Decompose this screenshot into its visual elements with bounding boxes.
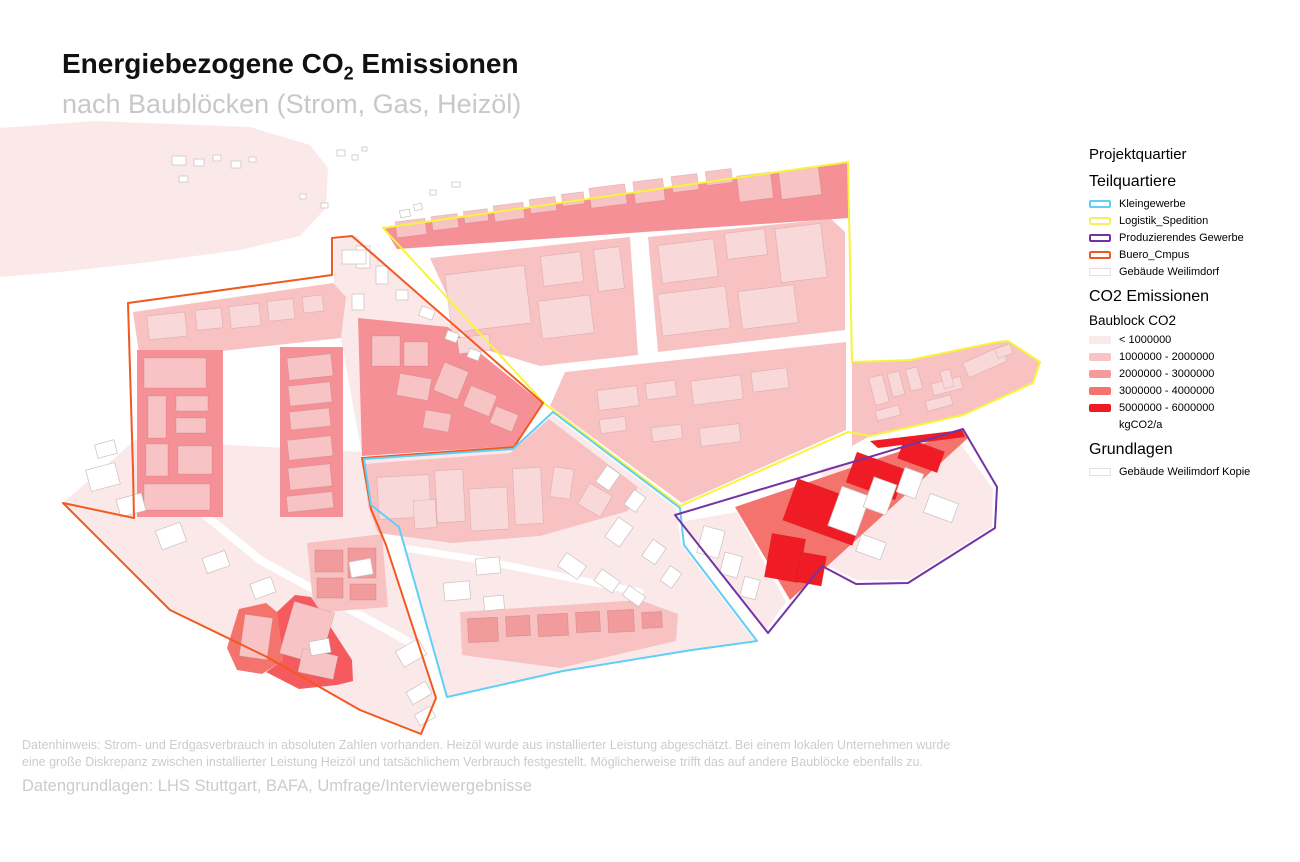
building-footprint (352, 294, 364, 310)
building-footprint (231, 161, 241, 168)
grundlage-swatch (1089, 468, 1111, 476)
teilquartier-item: Kleingewerbe (1089, 198, 1299, 210)
building-footprint (309, 638, 331, 655)
building-footprint (430, 190, 436, 195)
building-footprint (288, 464, 332, 490)
building-footprint (337, 150, 345, 156)
building-footprint (642, 611, 663, 628)
grundlage-label: Gebäude Weilimdorf Kopie (1119, 466, 1250, 478)
building-footprint (467, 617, 498, 643)
footer-note-line1: Datenhinweis: Strom- und Erdgasverbrauch… (22, 737, 950, 754)
teilquartier-swatch (1089, 234, 1111, 242)
co2-class-swatch (1089, 353, 1111, 361)
building-footprint (751, 368, 789, 392)
building-footprint (321, 203, 328, 208)
building-footprint (607, 609, 634, 632)
building-footprint (404, 342, 428, 366)
co2-class-item: 5000000 - 6000000 (1089, 402, 1299, 414)
building-footprint (213, 155, 221, 161)
co2-class-label: 2000000 - 3000000 (1119, 368, 1214, 380)
building-footprint (178, 446, 212, 474)
teilquartier-label: Kleingewerbe (1119, 198, 1186, 210)
teilquartier-label: Buero_Cmpus (1119, 249, 1189, 261)
building-footprint (287, 354, 333, 380)
building-footprint (431, 213, 459, 230)
legend-co2-list: < 10000001000000 - 20000002000000 - 3000… (1089, 334, 1299, 414)
page-subtitle: nach Baublöcken (Strom, Gas, Heizöl) (62, 89, 521, 120)
building-footprint (289, 408, 331, 430)
building-footprint (738, 285, 798, 330)
teilquartier-label: Produzierendes Gewerbe (1119, 232, 1244, 244)
teilquartier-item: Gebäude Weilimdorf (1089, 266, 1299, 278)
co2-class-item: < 1000000 (1089, 334, 1299, 346)
building-footprint (317, 578, 343, 598)
building-footprint (287, 436, 333, 460)
building-footprint (146, 444, 168, 476)
building-footprint (443, 581, 470, 601)
building-footprint (725, 229, 768, 260)
building-footprint (575, 611, 600, 632)
building-footprint (594, 247, 625, 292)
building-footprint (538, 295, 594, 339)
building-footprint (550, 467, 574, 499)
teilquartier-swatch (1089, 251, 1111, 259)
building-footprint (147, 312, 187, 340)
co2-class-swatch (1089, 404, 1111, 412)
teilquartier-item: Buero_Cmpus (1089, 249, 1299, 261)
building-footprint (513, 467, 544, 524)
teilquartier-swatch (1089, 268, 1111, 276)
building-footprint (414, 203, 423, 210)
building-footprint (483, 595, 504, 611)
building-footprint (288, 382, 332, 406)
building-footprint (658, 286, 731, 336)
building-footprint (342, 250, 366, 264)
legend-project-title: Projektquartier (1089, 146, 1299, 163)
building-footprint (144, 484, 210, 510)
building-footprint (249, 157, 256, 162)
map-footer: Datenhinweis: Strom- und Erdgasverbrauch… (22, 737, 950, 796)
legend-heading-grundlagen: Grundlagen (1089, 441, 1299, 459)
co2-class-item: 3000000 - 4000000 (1089, 385, 1299, 397)
legend-co2-unit: kgCO2/a (1119, 419, 1299, 431)
building-footprint (445, 265, 531, 332)
legend-heading-co2: CO2 Emissionen (1089, 288, 1299, 306)
building-footprint (148, 396, 166, 438)
building-footprint (267, 299, 295, 322)
building-footprint (395, 218, 427, 238)
teilquartier-swatch (1089, 217, 1111, 225)
legend-grundlagen-list: Gebäude Weilimdorf Kopie (1089, 466, 1299, 478)
co2-class-item: 1000000 - 2000000 (1089, 351, 1299, 363)
building-footprint (352, 155, 358, 160)
co2-class-item: 2000000 - 3000000 (1089, 368, 1299, 380)
building-footprint (399, 209, 410, 218)
building-footprint (376, 266, 388, 284)
building-footprint (315, 550, 343, 572)
building-footprint (194, 159, 204, 166)
legend-subheading-baublock: Baublock CO2 (1089, 313, 1299, 328)
building-footprint (505, 615, 530, 636)
building-footprint (172, 156, 186, 165)
building-footprint (469, 487, 509, 531)
district-background-area (0, 121, 328, 277)
building-footprint (349, 558, 373, 578)
page-title: Energiebezogene CO2 Emissionen (62, 48, 521, 85)
grundlage-item: Gebäude Weilimdorf Kopie (1089, 466, 1299, 478)
building-footprint (372, 336, 400, 366)
building-footprint (599, 416, 627, 433)
footer-data-sources: Datengrundlagen: LHS Stuttgart, BAFA, Um… (22, 777, 950, 796)
co2-class-label: 5000000 - 6000000 (1119, 402, 1214, 414)
building-footprint (176, 396, 208, 411)
teilquartier-swatch (1089, 200, 1111, 208)
building-footprint (705, 168, 733, 185)
building-footprint (362, 147, 367, 151)
building-footprint (176, 418, 206, 433)
building-footprint (475, 557, 500, 575)
building-footprint (144, 358, 206, 388)
building-footprint (229, 303, 261, 328)
co2-class-swatch (1089, 387, 1111, 395)
teilquartier-item: Logistik_Spedition (1089, 215, 1299, 227)
footer-note-line2: eine große Diskrepanz zwischen installie… (22, 754, 950, 771)
co2-subscript: 2 (344, 64, 354, 84)
teilquartier-label: Logistik_Spedition (1119, 215, 1208, 227)
building-footprint (540, 252, 583, 287)
building-footprint (452, 182, 460, 187)
building-footprint (195, 308, 223, 331)
building-footprint (239, 614, 273, 659)
map-header: Energiebezogene CO2 Emissionen nach Baub… (62, 48, 521, 120)
building-footprint (658, 239, 718, 284)
co2-class-swatch (1089, 336, 1111, 344)
co2-class-label: < 1000000 (1119, 334, 1171, 346)
legend-heading-teilquartiere: Teilquartiere (1089, 173, 1299, 191)
teilquartier-label: Gebäude Weilimdorf (1119, 266, 1219, 278)
co2-class-swatch (1089, 370, 1111, 378)
building-footprint (95, 440, 118, 459)
legend-teilquartiere-list: KleingewerbeLogistik_SpeditionProduziere… (1089, 198, 1299, 278)
building-footprint (413, 499, 436, 528)
building-footprint (179, 176, 188, 182)
co2-class-label: 1000000 - 2000000 (1119, 351, 1214, 363)
building-footprint (645, 380, 677, 400)
building-footprint (396, 290, 408, 300)
map-legend: Projektquartier Teilquartiere Kleingewer… (1089, 146, 1299, 483)
building-footprint (350, 584, 376, 600)
building-footprint (537, 613, 568, 637)
teilquartier-item: Produzierendes Gewerbe (1089, 232, 1299, 244)
co2-class-label: 3000000 - 4000000 (1119, 385, 1214, 397)
building-footprint (300, 194, 306, 199)
building-footprint (302, 295, 324, 313)
building-footprint (435, 469, 466, 522)
building-footprint (775, 223, 827, 282)
